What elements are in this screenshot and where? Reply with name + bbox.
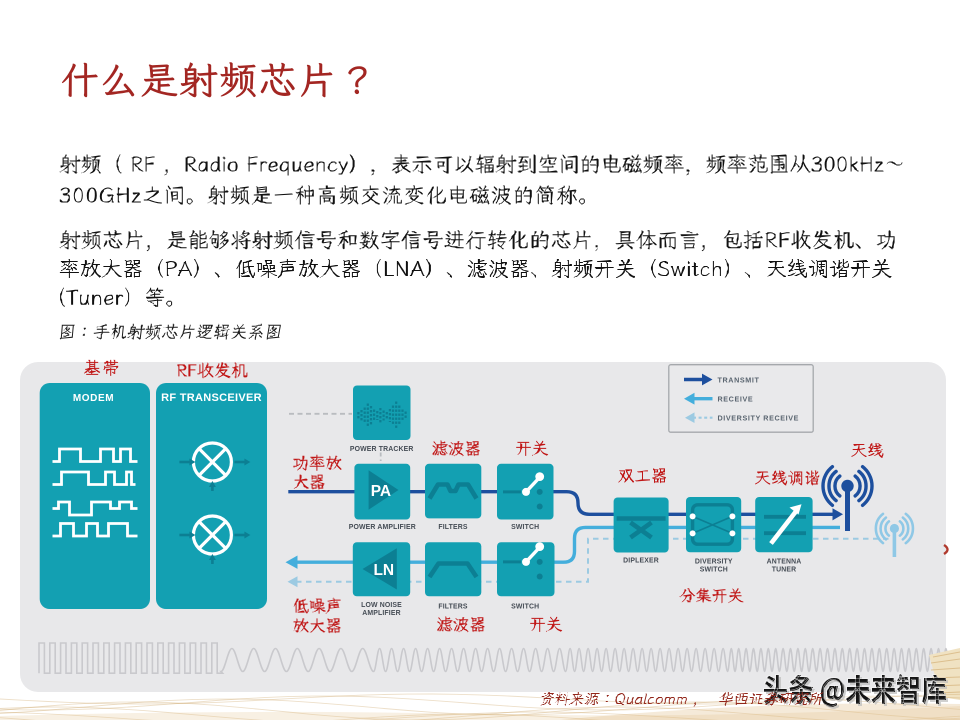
svg-text:FILTERS: FILTERS bbox=[438, 524, 468, 531]
svg-text:PA: PA bbox=[371, 483, 391, 500]
svg-text:TRANSMIT: TRANSMIT bbox=[718, 375, 760, 384]
svg-text:TUNER: TUNER bbox=[772, 567, 796, 574]
svg-text:DIVERSITY RECEIVE: DIVERSITY RECEIVE bbox=[718, 414, 800, 423]
svg-text:SWITCH: SWITCH bbox=[511, 604, 539, 611]
svg-text:SWITCH: SWITCH bbox=[700, 567, 728, 574]
svg-text:DIPLEXER: DIPLEXER bbox=[623, 558, 659, 565]
svg-text:SWITCH: SWITCH bbox=[511, 524, 539, 531]
svg-text:POWER TRACKER: POWER TRACKER bbox=[350, 446, 414, 453]
svg-text:AMPLIFIER: AMPLIFIER bbox=[362, 610, 400, 617]
svg-text:LN: LN bbox=[373, 562, 394, 579]
svg-text:FILTERS: FILTERS bbox=[438, 604, 468, 611]
svg-text:MODEM: MODEM bbox=[73, 393, 114, 404]
svg-text:POWER AMPLIFIER: POWER AMPLIFIER bbox=[349, 524, 416, 531]
svg-text:RECEIVE: RECEIVE bbox=[718, 395, 754, 404]
svg-text:LOW NOISE: LOW NOISE bbox=[361, 602, 402, 609]
svg-text:DIVERSITY: DIVERSITY bbox=[695, 559, 733, 566]
svg-text:ANTENNA: ANTENNA bbox=[767, 559, 802, 566]
svg-text:RF TRANSCEIVER: RF TRANSCEIVER bbox=[161, 392, 262, 404]
